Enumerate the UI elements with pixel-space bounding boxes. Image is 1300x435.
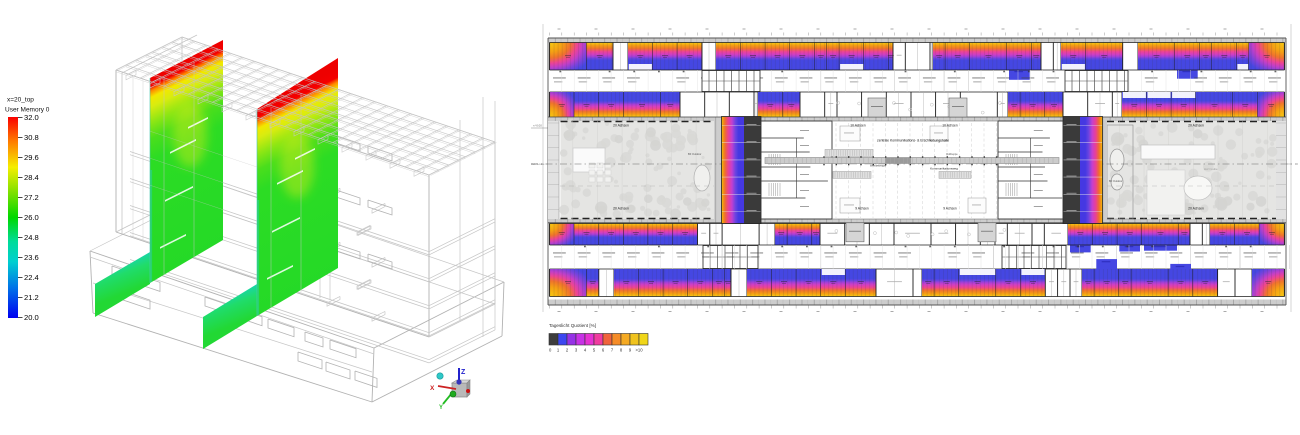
svg-text:20 Achsen: 20 Achsen — [1188, 207, 1204, 211]
svg-text:Kommunikationsweg: Kommunikationsweg — [930, 167, 958, 171]
svg-text:Wendeltreppe: Wendeltreppe — [870, 164, 887, 168]
svg-text:Z: Z — [461, 369, 466, 376]
svg-text:20 Achsen: 20 Achsen — [1188, 124, 1204, 128]
svg-text:zentrale Kommunikations- & Ers: zentrale Kommunikations- & Erschließungs… — [877, 139, 949, 143]
svg-text:28.4: 28.4 — [24, 173, 39, 182]
svg-text:32.0: 32.0 — [24, 113, 39, 122]
svg-text:+/-0.00: +/-0.00 — [533, 124, 542, 128]
svg-text:20.0: 20.0 — [24, 313, 39, 322]
svg-text:9 Achsen: 9 Achsen — [855, 207, 869, 211]
svg-text:24.8: 24.8 — [24, 233, 39, 242]
svg-text:29.6: 29.6 — [24, 153, 39, 162]
svg-text:23.6: 23.6 — [24, 253, 39, 262]
svg-text:9 Achsen: 9 Achsen — [943, 207, 957, 211]
svg-text:20 Achsen: 20 Achsen — [613, 207, 629, 211]
svg-text:Y: Y — [439, 405, 443, 411]
svg-text:10 Achsen: 10 Achsen — [942, 124, 958, 128]
svg-text:x=20_top: x=20_top — [7, 97, 34, 104]
svg-text:Hof / loube: Hof / loube — [1204, 167, 1218, 171]
svg-text:21.2: 21.2 — [24, 293, 39, 302]
svg-text:20 Achsen: 20 Achsen — [613, 124, 629, 128]
svg-text:30.8: 30.8 — [24, 133, 39, 142]
svg-text:>10: >10 — [635, 348, 643, 353]
svg-text:Rolltreppe: Rolltreppe — [946, 153, 958, 156]
svg-text:10 Achsen: 10 Achsen — [850, 124, 866, 128]
svg-text:22.4: 22.4 — [24, 273, 39, 282]
svg-text:26.0: 26.0 — [24, 213, 39, 222]
svg-text:27.2: 27.2 — [24, 193, 39, 202]
svg-text:BF Outdoor: BF Outdoor — [688, 152, 702, 156]
svg-text:BF Outdoor: BF Outdoor — [1109, 179, 1123, 183]
svg-text:X: X — [430, 385, 435, 392]
svg-text:Tageslicht Quotient [%]: Tageslicht Quotient [%] — [549, 323, 596, 328]
